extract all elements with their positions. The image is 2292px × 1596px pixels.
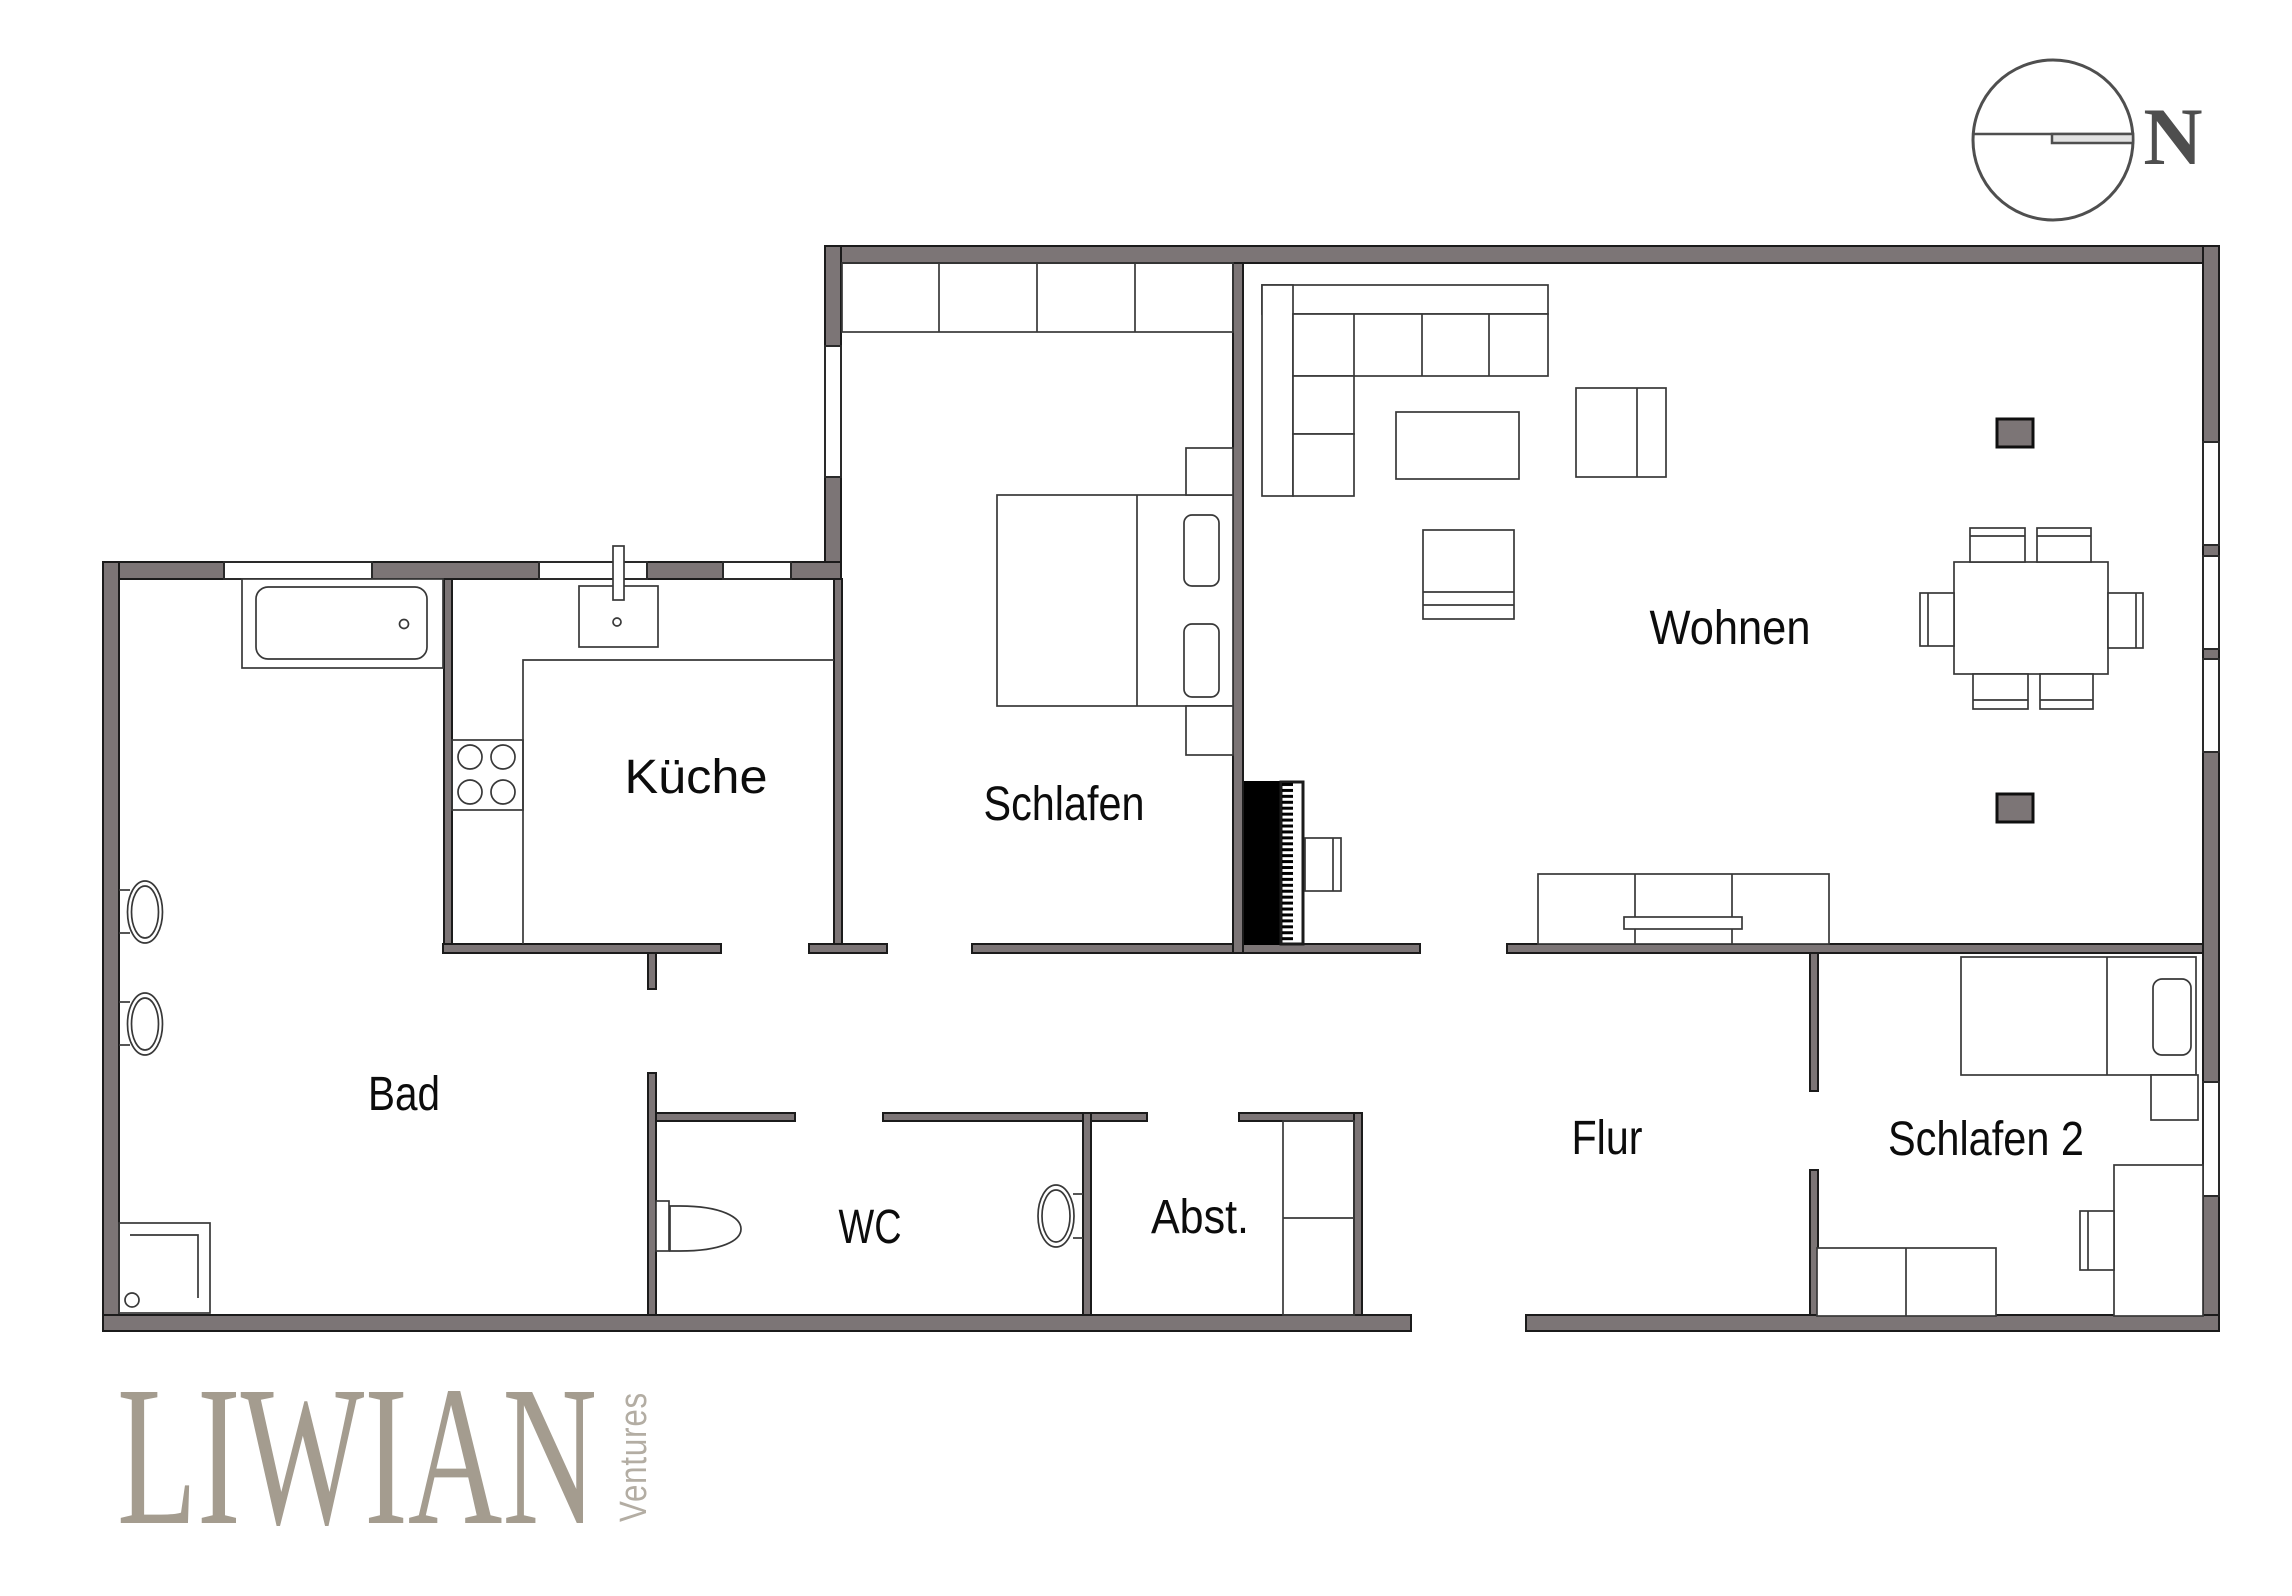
svg-text:Küche: Küche [625, 751, 768, 804]
svg-text:Wohnen: Wohnen [1650, 602, 1811, 655]
svg-text:N: N [2143, 91, 2202, 182]
svg-text:Flur: Flur [1572, 1112, 1643, 1165]
svg-text:WC: WC [839, 1201, 902, 1254]
svg-text:Ventures: Ventures [613, 1392, 655, 1522]
svg-text:Schlafen 2: Schlafen 2 [1888, 1113, 2084, 1166]
svg-text:LIWIAN: LIWIAN [117, 1346, 597, 1567]
svg-text:Schlafen: Schlafen [984, 778, 1145, 831]
svg-text:Abst.: Abst. [1151, 1191, 1249, 1244]
svg-text:Bad: Bad [368, 1068, 440, 1121]
